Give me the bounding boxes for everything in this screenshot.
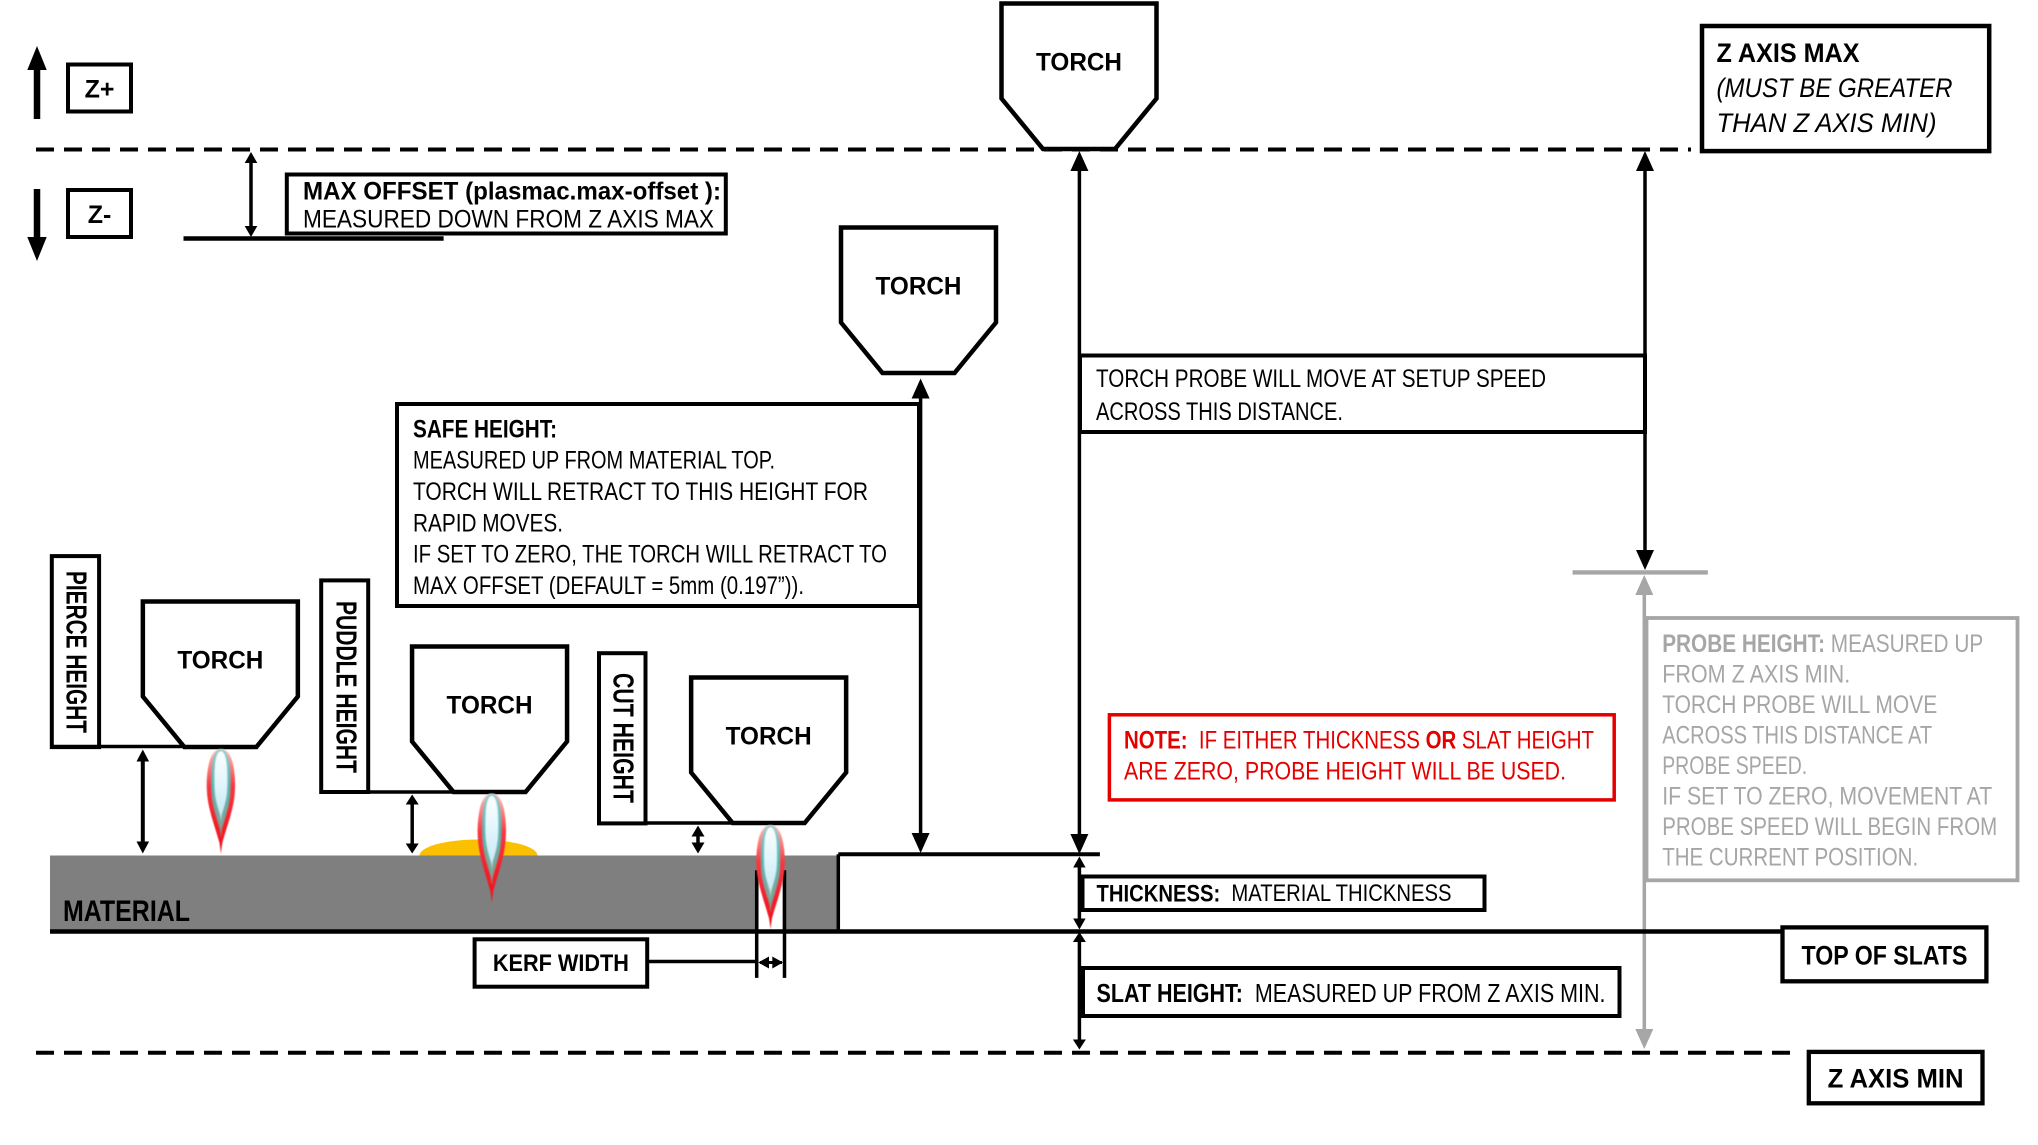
svg-text:THICKNESS: MATERIAL THICKNESS: THICKNESS: MATERIAL THICKNESS: [1097, 880, 1452, 907]
svg-text:TORCH: TORCH: [876, 273, 962, 301]
svg-text:MAX OFFSET (DEFAULT = 5mm (0.1: MAX OFFSET (DEFAULT = 5mm (0.197”)).: [413, 572, 804, 600]
svg-text:TORCH PROBE WILL MOVE: TORCH PROBE WILL MOVE: [1662, 691, 1937, 719]
svg-text:Z AXIS MIN: Z AXIS MIN: [1828, 1064, 1964, 1094]
svg-text:IF SET TO ZERO, THE TORCH WILL: IF SET TO ZERO, THE TORCH WILL RETRACT T…: [413, 541, 887, 569]
svg-text:MAX OFFSET (plasmac.max-offset: MAX OFFSET (plasmac.max-offset ):: [303, 178, 721, 206]
svg-text:ARE ZERO, PROBE HEIGHT WILL BE: ARE ZERO, PROBE HEIGHT WILL BE USED.: [1124, 758, 1566, 786]
svg-text:THAN Z AXIS MIN): THAN Z AXIS MIN): [1717, 108, 1937, 138]
svg-text:KERF WIDTH: KERF WIDTH: [493, 950, 629, 977]
svg-text:TOP OF SLATS: TOP OF SLATS: [1802, 941, 1968, 971]
svg-text:Z+: Z+: [85, 76, 115, 104]
svg-text:TORCH: TORCH: [447, 692, 533, 720]
svg-text:TORCH: TORCH: [177, 647, 263, 675]
svg-text:TORCH: TORCH: [726, 723, 812, 751]
svg-text:MEASURED UP FROM MATERIAL TOP.: MEASURED UP FROM MATERIAL TOP.: [413, 447, 775, 475]
svg-text:PUDDLE HEIGHT: PUDDLE HEIGHT: [329, 601, 361, 773]
svg-text:RAPID MOVES.: RAPID MOVES.: [413, 509, 563, 537]
svg-text:PIERCE HEIGHT: PIERCE HEIGHT: [60, 571, 92, 733]
svg-text:CUT HEIGHT: CUT HEIGHT: [606, 673, 638, 803]
svg-text:PROBE SPEED WILL BEGIN FROM: PROBE SPEED WILL BEGIN FROM: [1662, 813, 1997, 841]
svg-text:TORCH PROBE WILL MOVE AT SETUP: TORCH PROBE WILL MOVE AT SETUP SPEED: [1096, 365, 1546, 393]
svg-text:ACROSS THIS DISTANCE AT: ACROSS THIS DISTANCE AT: [1662, 722, 1932, 750]
svg-text:SLAT HEIGHT: MEASURED UP FROM: SLAT HEIGHT: MEASURED UP FROM Z AXIS MIN…: [1097, 978, 1606, 1008]
svg-text:MEASURED DOWN FROM Z AXIS MAX: MEASURED DOWN FROM Z AXIS MAX: [303, 206, 714, 234]
svg-text:ACROSS THIS DISTANCE.: ACROSS THIS DISTANCE.: [1096, 398, 1343, 426]
svg-text:TORCH WILL RETRACT TO THIS HEI: TORCH WILL RETRACT TO THIS HEIGHT FOR: [413, 478, 868, 506]
svg-text:TORCH: TORCH: [1036, 49, 1122, 77]
svg-text:PROBE SPEED.: PROBE SPEED.: [1662, 752, 1807, 780]
svg-text:(MUST BE GREATER: (MUST BE GREATER: [1717, 73, 1953, 103]
svg-text:MATERIAL: MATERIAL: [63, 895, 190, 928]
svg-text:FROM Z AXIS MIN.: FROM Z AXIS MIN.: [1662, 661, 1850, 689]
svg-text:Z-: Z-: [88, 201, 112, 229]
svg-text:PROBE HEIGHT: MEASURED UP: PROBE HEIGHT: MEASURED UP: [1662, 630, 1983, 658]
svg-text:SAFE HEIGHT:: SAFE HEIGHT:: [413, 415, 557, 443]
svg-text:IF SET TO ZERO, MOVEMENT AT: IF SET TO ZERO, MOVEMENT AT: [1662, 783, 1992, 811]
svg-text:NOTE: IF EITHER THICKNESS OR: NOTE: IF EITHER THICKNESS OR SLAT HEIGHT: [1124, 727, 1594, 755]
svg-text:Z AXIS MAX: Z AXIS MAX: [1717, 38, 1860, 68]
svg-text:THE CURRENT POSITION.: THE CURRENT POSITION.: [1662, 844, 1918, 872]
